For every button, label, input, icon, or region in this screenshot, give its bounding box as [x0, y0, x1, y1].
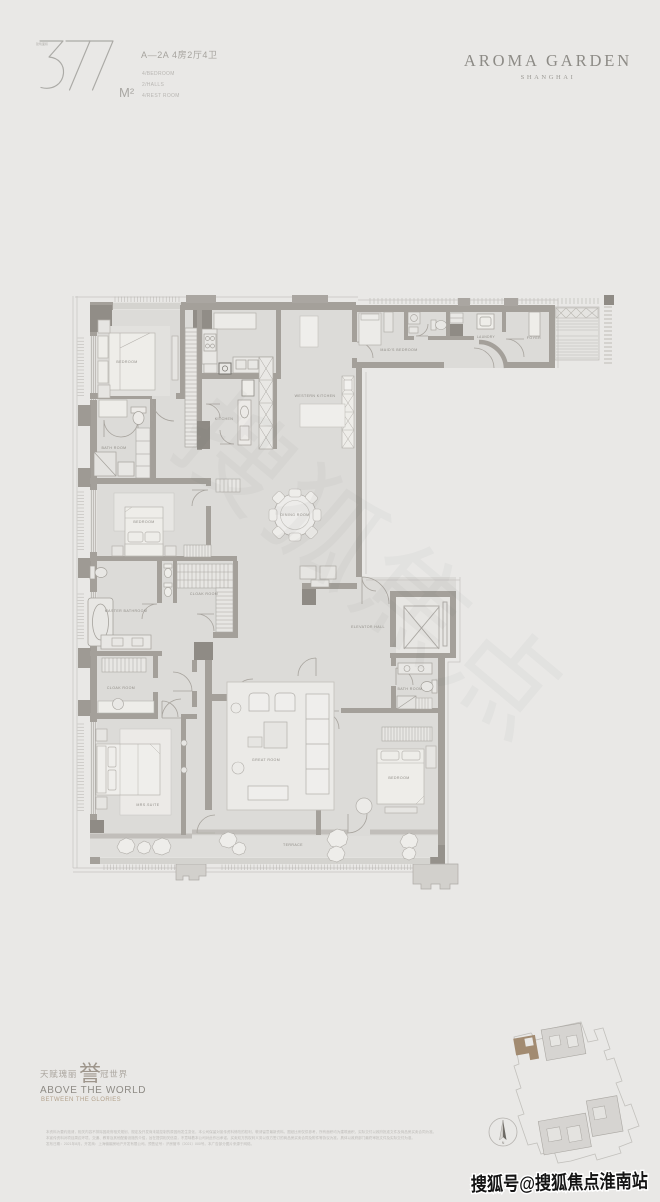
svg-text:MRS.SUITE: MRS.SUITE [136, 803, 159, 807]
svg-text:ELEVATOR HALL: ELEVATOR HALL [351, 625, 385, 629]
svg-text:冠世界: 冠世界 [100, 1069, 128, 1079]
svg-text:CLOAK ROOM: CLOAK ROOM [190, 592, 218, 596]
svg-text:建筑面积: 建筑面积 [36, 41, 48, 46]
svg-text:A—2A 4房2厅4卫: A—2A 4房2厅4卫 [141, 49, 218, 60]
svg-text:发布日期：2021年8月。开发商：上海愉樾房地产开发有限公司: 发布日期：2021年8月。开发商：上海愉樾房地产开发有限公司。预售证号：沪房管市… [46, 1141, 254, 1146]
svg-text:AROMA GARDEN: AROMA GARDEN [464, 51, 632, 70]
svg-text:本资料为要约邀请，相关内容不排除因政府相关规划、规定及开发商: 本资料为要约邀请，相关内容不排除因政府相关规划、规定及开发商未能控制的原因而发生… [46, 1129, 436, 1134]
svg-text:BEDROOM: BEDROOM [116, 360, 137, 364]
svg-text:TERRACE: TERRACE [283, 843, 303, 847]
svg-text:WESTERN KITCHEN: WESTERN KITCHEN [295, 394, 336, 398]
svg-text:CLOAK ROOM: CLOAK ROOM [107, 686, 135, 690]
svg-text:BATH ROOM: BATH ROOM [101, 446, 126, 450]
svg-text:LAUNDRY: LAUNDRY [477, 335, 495, 339]
svg-text:SHANGHAI: SHANGHAI [521, 74, 576, 81]
svg-text:BEDROOM: BEDROOM [133, 520, 154, 524]
svg-text:搜狐号@搜狐焦点淮南站: 搜狐号@搜狐焦点淮南站 [471, 1169, 648, 1196]
svg-text:天赋瑰丽: 天赋瑰丽 [40, 1069, 77, 1079]
svg-text:FOYER: FOYER [527, 336, 541, 340]
svg-text:4/BEDROOM: 4/BEDROOM [142, 71, 175, 77]
svg-text:KITCHEN: KITCHEN [215, 417, 234, 421]
svg-text:BEDROOM: BEDROOM [388, 776, 409, 780]
svg-text:4/REST ROOM: 4/REST ROOM [142, 93, 180, 99]
svg-text:M²: M² [119, 85, 135, 100]
svg-text:MASTER BATHROOM: MASTER BATHROOM [105, 609, 147, 613]
svg-text:GREAT ROOM: GREAT ROOM [252, 758, 280, 762]
svg-text:N: N [502, 1141, 505, 1145]
svg-text:ABOVE THE WORLD: ABOVE THE WORLD [40, 1085, 146, 1096]
svg-text:DINING ROOM: DINING ROOM [280, 513, 309, 517]
svg-text:誉: 誉 [79, 1061, 101, 1086]
svg-text:BETWEEN THE GLORIES: BETWEEN THE GLORIES [41, 1097, 121, 1103]
svg-text:本宣传资料对项目周边环境、交通、教育及其他配套设施的介绍，旨: 本宣传资料对项目周边环境、交通、教育及其他配套设施的介绍，旨在提供相关信息，不意… [46, 1135, 415, 1140]
svg-text:BATH ROOM: BATH ROOM [397, 687, 422, 691]
svg-text:MAID'S BEDROOM: MAID'S BEDROOM [380, 348, 417, 352]
svg-text:2/HALLS: 2/HALLS [142, 82, 164, 88]
